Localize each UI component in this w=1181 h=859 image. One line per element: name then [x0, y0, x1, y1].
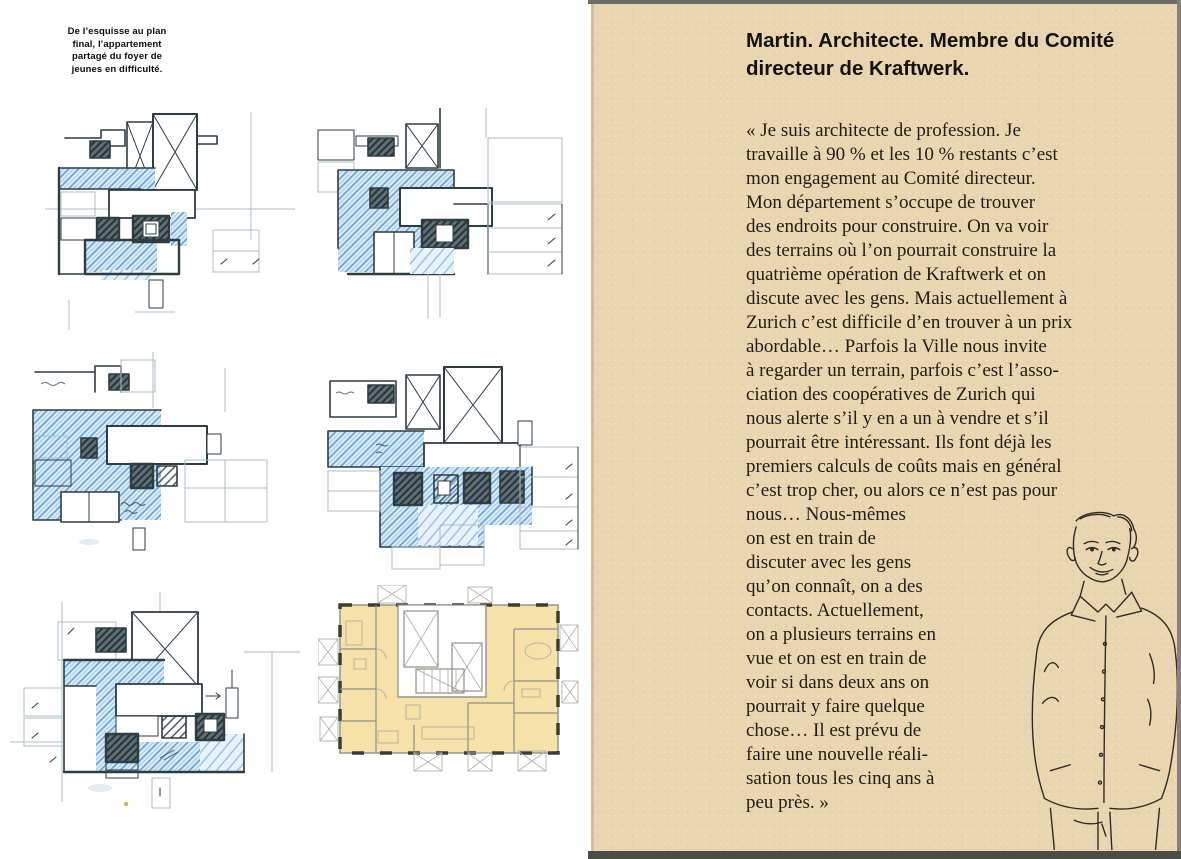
body-line: voir si dans deux ans on — [746, 671, 1014, 695]
body-line: Zurich c’est difficile d’en trouver à un… — [746, 311, 1181, 335]
body-line: on est en train de — [746, 527, 1014, 551]
body-line: à regarder un terrain, parfois c’est l’a… — [746, 359, 1181, 383]
body-line: vue et on est en train de — [746, 647, 1014, 671]
sketch-plan-3 — [25, 352, 280, 577]
body-line: nous… Nous-mêmes — [746, 503, 1014, 527]
body-line: abordable… Parfois la Ville nous invite — [746, 335, 1181, 359]
right-page: Martin. Architecte. Membre du Comitédire… — [591, 0, 1181, 859]
page-gutter-shadow — [591, 0, 594, 859]
body-line: sation tous les cinq ans à — [746, 767, 1014, 791]
body-line: chose… Il est prévu de — [746, 719, 1014, 743]
interview-paragraph-wrap: nous… Nous-mêmeson est en train dediscut… — [746, 503, 1014, 815]
body-line: discute avec les gens. Mais actuellement… — [746, 287, 1181, 311]
sketch-plan-2 — [310, 108, 565, 348]
caption-line: De l’esquisse au plan — [52, 26, 182, 39]
sketch-plan-5 — [10, 592, 300, 842]
body-line: pourrait être intéressant. Ils font déjà… — [746, 431, 1181, 455]
figure-caption: De l’esquisse au planfinal, l’appartemen… — [52, 26, 182, 76]
body-line: nous alerte s’il y en a un à vendre et s… — [746, 407, 1181, 431]
left-page: De l’esquisse au planfinal, l’appartemen… — [0, 0, 591, 859]
body-line: Mon département s’occupe de trouver — [746, 191, 1181, 215]
heading-line: directeur de Kraftwerk. — [746, 55, 1176, 83]
body-line: quatrième opération de Kraftwerk et on — [746, 263, 1181, 287]
martin-portrait-illustration — [1014, 505, 1181, 857]
interview-paragraph-full: « Je suis architecte de profession. Jetr… — [746, 119, 1181, 503]
interview-heading: Martin. Architecte. Membre du Comitédire… — [746, 27, 1176, 83]
body-line: mon engagement au Comité directeur. — [746, 167, 1181, 191]
sketch-plan-4 — [322, 355, 584, 595]
body-line: « Je suis architecte de profession. Je — [746, 119, 1181, 143]
kraftwerk-book-spread: De l’esquisse au planfinal, l’appartemen… — [0, 0, 1181, 859]
interview-bottom-row: nous… Nous-mêmeson est en train dediscut… — [746, 503, 1181, 857]
body-line: c’est trop cher, ou alors ce n’est pas p… — [746, 479, 1181, 503]
final-floor-plan — [318, 585, 580, 815]
body-line: on a plusieurs terrains en — [746, 623, 1014, 647]
body-line: faire une nouvelle réali- — [746, 743, 1014, 767]
book-edge-right — [1177, 0, 1181, 859]
body-line: peu près. » — [746, 791, 1014, 815]
body-line: ciation des coopératives de Zurich qui — [746, 383, 1181, 407]
book-edge-bottom — [588, 851, 1181, 859]
body-line: des terrains où l’on pourrait construire… — [746, 239, 1181, 263]
body-line: premiers calculs de coûts mais en généra… — [746, 455, 1181, 479]
heading-line: Martin. Architecte. Membre du Comité — [746, 27, 1176, 55]
book-edge-top — [588, 0, 1181, 4]
interview-body: « Je suis architecte de profession. Jetr… — [746, 119, 1181, 857]
caption-line: final, l’appartement — [52, 39, 182, 52]
caption-line: jeunes en difficulté. — [52, 64, 182, 77]
body-line: travaille à 90 % et les 10 % restants c’… — [746, 143, 1181, 167]
body-line: contacts. Actuellement, — [746, 599, 1014, 623]
caption-line: partagé du foyer de — [52, 51, 182, 64]
sketch-plan-1 — [45, 112, 295, 342]
body-line: discuter avec les gens — [746, 551, 1014, 575]
body-line: pourrait y faire quelque — [746, 695, 1014, 719]
body-line: des endroits pour construire. On va voir — [746, 215, 1181, 239]
body-line: qu’on connaît, on a des — [746, 575, 1014, 599]
